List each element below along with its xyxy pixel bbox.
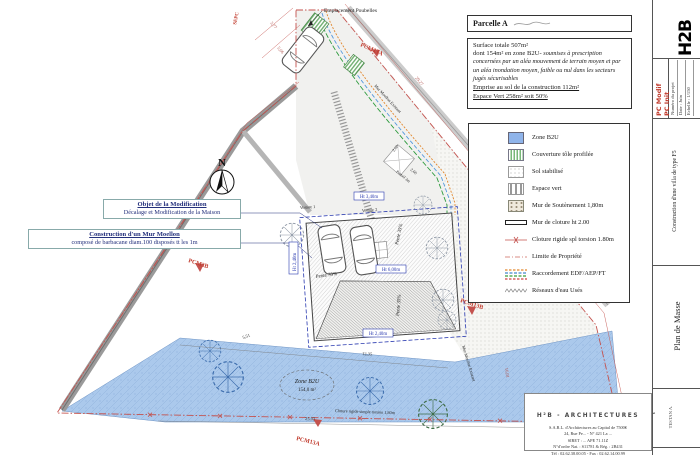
firm-name: H²B - ARCHITECTURES	[537, 413, 639, 419]
pc-modif-label: PC Modif	[655, 84, 663, 116]
svg-text:5,51: 5,51	[242, 333, 251, 341]
legend-label: Couverture tôle profilée	[532, 151, 593, 158]
firm-line: Tél : 02.62.38.00.05 - Fax : 02.62.14.00…	[525, 451, 651, 455]
echelle-row: Echelle : 1/150	[686, 60, 694, 116]
date-row: Date : Juin	[678, 60, 686, 116]
strip-line	[652, 388, 700, 389]
project-title: Construction d'une villa de type F5	[672, 122, 678, 260]
poubelles-label: Emplacement Poubelles	[324, 8, 377, 14]
ht-600-label: Ht 6,00m	[382, 268, 400, 273]
surface-total: Surface totale 507m²	[473, 42, 528, 49]
legend-row: Raccordement EDF/AEP/FT	[469, 265, 629, 282]
strip-line	[652, 447, 700, 448]
legend-label: Raccordement EDF/AEP/FT	[532, 270, 606, 277]
callout-body: Décalage et Modification de la Maison	[107, 209, 237, 217]
callout-body: composé de barbacane diam.100 disposés t…	[32, 239, 237, 247]
legend-swatch-limite-icon	[505, 252, 527, 262]
legend-swatch-cloture-rigide-icon	[505, 235, 527, 245]
legend-swatch-zone-b2u-icon	[508, 132, 524, 144]
legend-label: Mur de Soutènement 1,80m	[532, 202, 603, 209]
legend-swatch-tole-icon	[508, 149, 524, 161]
logo-h2b: H2B	[676, 20, 696, 56]
legend-row: Espace vert	[469, 180, 629, 197]
legend-swatch-soutenement-icon	[508, 200, 524, 212]
numero-projet-label: Numéro du projet	[670, 60, 678, 116]
ht-340-label: Ht 3,40m	[360, 195, 378, 200]
north-label: N	[218, 157, 226, 169]
legend-swatch-mur-cloture-icon	[505, 220, 527, 225]
legend-row: Limite de Propriété	[469, 248, 629, 265]
titleblock-divider	[652, 0, 653, 455]
legend-row: Sol stabilisé	[469, 163, 629, 180]
legend-label: Limite de Propriété	[532, 253, 582, 260]
legend-swatch-sol-icon	[508, 166, 524, 178]
surface-zone: dont 154m² en zone B2U-	[473, 50, 542, 57]
legend-row: Couverture tôle profilée	[469, 146, 629, 163]
parcel-scribble	[512, 19, 552, 29]
ht-240-bottom-label: Ht 2,40m	[369, 332, 387, 337]
site-plan-sheet: N Emplacement Poubelles Zone B2U 154,0 m…	[0, 0, 700, 455]
callout-mur-moellon: Construction d'un Mur Moellon composé de…	[28, 229, 241, 249]
firm-block: H²B - ARCHITECTURES S.A.R.L. d'Architect…	[524, 393, 652, 451]
legend-swatch-raccordement-icon	[505, 268, 527, 280]
parcel-header-box: Parcelle A	[467, 15, 632, 32]
svg-text:3,77: 3,77	[268, 20, 278, 30]
zone-area: 154,0 m²	[298, 387, 316, 393]
callout-modification: Objet de la Modification Décalage et Mod…	[103, 199, 241, 219]
firm-logo: H2B architectures	[676, 4, 700, 56]
strip-line	[652, 118, 700, 119]
document-title: Plan de Masse	[672, 270, 682, 382]
legend-label: Zone B2U	[532, 134, 559, 141]
strip-line	[652, 58, 700, 59]
callout-title: Construction d'un Mur Moellon	[32, 231, 237, 239]
legend-row: Réseaux d'eau Usés	[469, 282, 629, 299]
client-name: TESTAN A.	[668, 390, 673, 444]
legend-swatch-espace-vert-icon	[508, 183, 524, 195]
callout-title: Objet de la Modification	[107, 201, 237, 209]
surface-espace-vert: Espace Vert 258m² soit 50%	[473, 93, 626, 101]
legend-row: Zone B2U	[469, 129, 629, 146]
surface-emprise: Emprise au sol de la construction 112m²	[473, 84, 626, 92]
legend-row: Mur de cloture ht 2.00	[469, 214, 629, 231]
project-meta-table: Numéro du projet Date : Juin Echelle : 1…	[670, 60, 694, 116]
svg-text:5,06: 5,06	[275, 45, 285, 55]
ht-240-left-label: Ht 2,40m	[293, 253, 298, 271]
legend-row: Cloture rigide spl torsion 1.80m	[469, 231, 629, 248]
parcel-label: Parcelle A	[473, 19, 508, 28]
strip-line	[652, 265, 700, 266]
legend-row: Mur de Soutènement 1,80m	[469, 197, 629, 214]
legend-label: Cloture rigide spl torsion 1.80m	[532, 236, 614, 243]
ref-bottom: PCM13A	[296, 436, 321, 448]
legend-label: Espace vert	[532, 185, 562, 192]
legend-box: Zone B2U Couverture tôle profilée Sol st…	[468, 123, 630, 303]
north-arrow-icon: N	[210, 157, 234, 194]
legend-label: Mur de cloture ht 2.00	[532, 219, 589, 226]
surface-info-box: Surface totale 507m² dont 154m² en zone …	[467, 38, 632, 109]
legend-swatch-reseaux-icon	[505, 286, 527, 296]
ref-sepc: SEPC	[233, 11, 241, 25]
legend-label: Sol stabilisé	[532, 168, 563, 175]
zone-name: Zone B2U	[295, 379, 320, 385]
legend-label: Réseaux d'eau Usés	[532, 287, 583, 294]
